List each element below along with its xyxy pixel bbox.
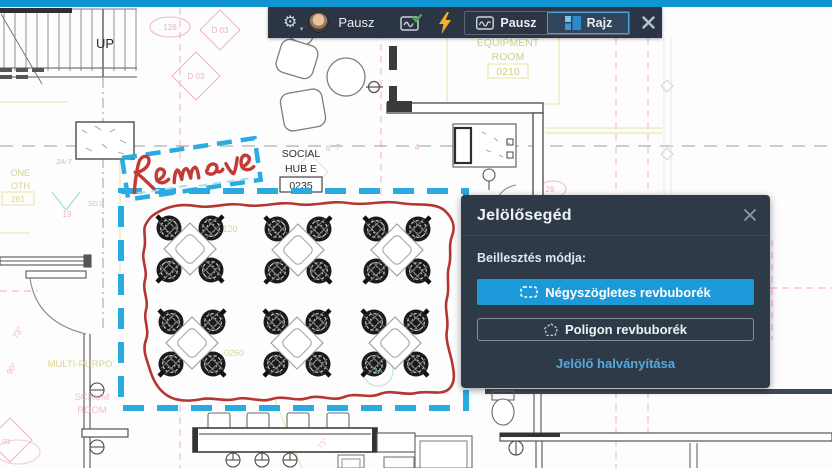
app-window: UP SOCIAL HUB E 0235 EQUIPMENT ROOM 0210…	[0, 0, 832, 468]
lightning-icon[interactable]	[438, 12, 452, 34]
top-accent-strip	[0, 0, 832, 7]
polygon-revision-bubble-button[interactable]: Poligon revbuborék	[477, 318, 754, 341]
dashed-rect-icon	[520, 286, 538, 298]
svg-text:2A: 2A	[373, 367, 383, 376]
pausz-mode-button[interactable]: Pausz	[465, 12, 547, 34]
rect-revision-bubble-label: Négyszögletes revbuborék	[545, 285, 710, 300]
svg-text:03: 03	[2, 439, 10, 446]
staircase	[0, 8, 137, 84]
svg-text:ROOM: ROOM	[77, 405, 107, 416]
svg-text:D 03: D 03	[212, 26, 229, 35]
layout-grid-icon	[565, 16, 581, 30]
gear-icon[interactable]: ⚙▾	[283, 15, 297, 31]
svg-text:SG1: SG1	[88, 201, 102, 208]
dashed-pentagon-icon	[544, 323, 558, 336]
caret-icon: ▾	[300, 26, 304, 33]
pausz-mode-label: Pausz	[500, 16, 536, 30]
svg-text:126: 126	[163, 23, 177, 32]
polygon-revision-bubble-label: Poligon revbuborék	[565, 322, 687, 337]
avatar[interactable]	[308, 12, 329, 33]
svg-text:0260: 0260	[224, 348, 244, 358]
svg-text:6: 6	[326, 144, 331, 153]
svg-text:0210: 0210	[496, 66, 520, 78]
svg-text:ONE: ONE	[10, 168, 30, 178]
svg-text:SCRUM: SCRUM	[75, 392, 110, 403]
markup-helper-panel: Jelölősegéd Beillesztés módja: Négyszögl…	[461, 195, 770, 388]
panel-close-icon[interactable]	[743, 208, 757, 222]
toolbar-close-icon[interactable]	[642, 16, 655, 29]
rajz-mode-button[interactable]: Rajz	[547, 12, 629, 34]
svg-text:26: 26	[546, 185, 555, 194]
svg-text:EQUIPMENT: EQUIPMENT	[477, 37, 540, 49]
table-groups	[148, 207, 439, 385]
user-name-label: Pausz	[338, 15, 374, 30]
svg-text:90°: 90°	[5, 361, 19, 376]
mode-segmented-control: Pausz Rajz	[464, 11, 630, 35]
insert-mode-label: Beillesztés módja:	[477, 251, 754, 265]
fade-marker-link[interactable]: Jelölő halványítása	[477, 353, 754, 374]
svg-text:2A-7: 2A-7	[56, 157, 72, 166]
bottom-right-walls	[485, 389, 832, 468]
rajz-mode-label: Rajz	[587, 16, 613, 30]
panel-header: Jelölősegéd	[461, 195, 770, 235]
svg-text:120: 120	[222, 224, 237, 234]
svg-text:73°: 73°	[11, 325, 25, 340]
panel-title: Jelölősegéd	[477, 207, 572, 224]
snapshot-check-icon[interactable]	[400, 13, 423, 33]
svg-text:4: 4	[415, 143, 420, 152]
kitchen-counter	[193, 413, 472, 468]
svg-text:SOCIAL: SOCIAL	[282, 148, 321, 160]
svg-text:HUB E: HUB E	[285, 163, 317, 175]
column-section	[76, 122, 134, 159]
svg-text:ROOM: ROOM	[492, 51, 525, 63]
svg-text:261: 261	[11, 194, 25, 204]
floating-toolbar: ⚙▾ Pausz Pausz Rajz	[268, 7, 662, 38]
svg-text:19: 19	[63, 210, 72, 219]
panel-body: Beillesztés módja: Négyszögletes revbubo…	[461, 236, 770, 374]
rect-revision-bubble-button[interactable]: Négyszögletes revbuborék	[477, 279, 754, 305]
svg-text:UP: UP	[96, 36, 114, 51]
svg-text:7: 7	[336, 143, 341, 152]
svg-text:D 03: D 03	[188, 72, 205, 81]
svg-text:MULTI-PURPO: MULTI-PURPO	[48, 359, 113, 370]
svg-text:OTH: OTH	[11, 181, 30, 191]
snapshot-icon	[476, 16, 494, 30]
